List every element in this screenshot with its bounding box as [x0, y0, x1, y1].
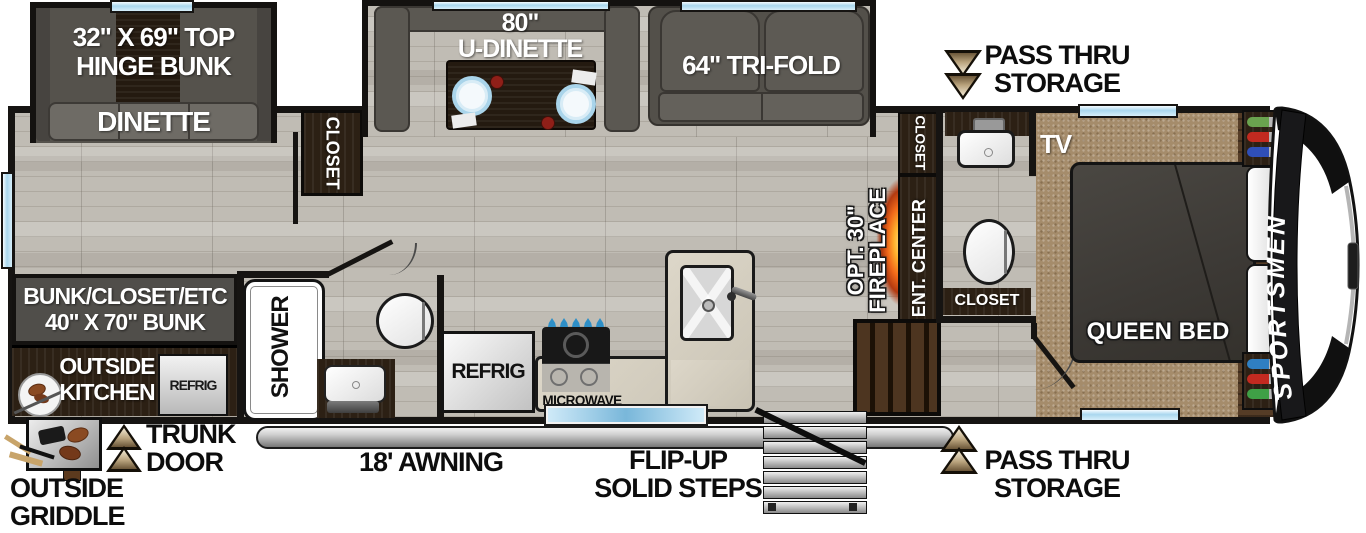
bunk-slide-line2: HINGE BUNK [36, 53, 271, 80]
bath-wall [237, 271, 329, 278]
island-sink [680, 265, 734, 341]
outside-kitchen-line2: KITCHEN [48, 381, 166, 404]
dinette-slideout: 32" X 69" TOP HINGE BUNK DINETTE [30, 2, 277, 143]
u-dinette-size: 80" [440, 11, 600, 37]
trunk-door-label: TRUNK DOOR [146, 421, 236, 476]
cup [490, 75, 504, 89]
outside-griddle-label: OUTSIDE GRIDDLE [10, 475, 126, 530]
griddle-line2: GRIDDLE [10, 503, 126, 531]
bath-closet: CLOSET [943, 288, 1031, 315]
place-setting [452, 76, 492, 116]
island-faucet-base [727, 292, 736, 301]
toilet [963, 219, 1015, 285]
refrig-label: REFRIG [451, 361, 524, 382]
awning-label: 18' AWNING [352, 449, 510, 477]
stove [542, 327, 610, 391]
trunk-line2: DOOR [146, 449, 236, 477]
dinette-slide-window [110, 0, 194, 13]
bunk-closet-cabinet: BUNK/CLOSET/ETC 40" X 70" BUNK [12, 274, 238, 345]
tri-fold-label: 64" TRI-FOLD [655, 52, 867, 79]
bedroom-window-top [1078, 104, 1178, 118]
outside-kitchen-line1: OUTSIDE [48, 355, 166, 378]
fireplace-line2: FIREPLACE [867, 188, 889, 313]
pass-thru-storage-bottom: PASS THRU STORAGE [978, 447, 1136, 502]
pass-thru-bottom-line2: STORAGE [978, 475, 1136, 503]
griddle-line1: OUTSIDE [10, 475, 126, 503]
tv-label: TV [1040, 131, 1084, 158]
bath-closet-label: CLOSET [955, 293, 1020, 309]
griddle-icon [26, 417, 102, 471]
toilet [376, 293, 434, 349]
front-cap: SPORTSMEN [1230, 98, 1366, 432]
trunk-line1: TRUNK [146, 421, 236, 449]
pass-thru-top-line2: STORAGE [980, 70, 1134, 98]
rear-window [1, 172, 14, 269]
bedroom-window-bottom [1080, 408, 1180, 422]
bunk-label-line2: 40" X 70" BUNK [16, 311, 234, 334]
u-dinette-label: U-DINETTE [430, 37, 610, 63]
queen-bed-label: QUEEN BED [1078, 320, 1238, 344]
bunk-label-line1: BUNK/CLOSET/ETC [16, 285, 234, 308]
hall-closet-label: CLOSET [323, 116, 341, 189]
entry-door [546, 406, 706, 424]
refrigerator: REFRIG [441, 331, 535, 413]
shower: SHOWER [243, 279, 325, 421]
steps-line1: FLIP-UP [590, 447, 766, 475]
bath-wall [936, 112, 943, 323]
dinette-seat-label: DINETTE [36, 108, 271, 137]
vanity-sink [957, 130, 1015, 168]
place-setting [556, 84, 596, 124]
shower-label: SHOWER [269, 296, 293, 398]
living-slide-window [432, 0, 610, 11]
u-dinette-bench [374, 6, 410, 132]
flip-up-steps-label: FLIP-UP SOLID STEPS [590, 447, 766, 502]
u-dinette-bench [604, 6, 640, 132]
pony-wall [293, 132, 298, 224]
outside-kitchen-cabinet: OUTSIDE KITCHEN REFRIG [12, 345, 238, 416]
bath-sink [324, 365, 386, 403]
living-slide-window [680, 0, 857, 12]
down-arrow-icon [944, 73, 982, 100]
exterior-steps [763, 411, 867, 515]
rv-floorplan: BUNK/CLOSET/ETC 40" X 70" BUNK OUTSIDE K… [0, 0, 1366, 533]
pass-thru-storage-top: PASS THRU STORAGE [980, 42, 1134, 97]
bath-faucet [327, 401, 379, 413]
bath-wall [936, 316, 1036, 323]
bunk-slide-line1: 32" X 69" TOP [36, 24, 271, 51]
outside-refrig-label: REFRIG [170, 378, 217, 392]
outside-kitchen-refrig: REFRIG [158, 354, 228, 416]
burner-flame-icons [548, 318, 608, 328]
cup [541, 116, 555, 130]
pass-thru-bottom-line1: PASS THRU [978, 447, 1136, 475]
pass-thru-top-line1: PASS THRU [980, 42, 1134, 70]
hall-closet: CLOSET [301, 110, 363, 196]
down-arrow-icon [944, 50, 982, 77]
steps-line2: SOLID STEPS [590, 475, 766, 503]
tv-wall [1029, 112, 1036, 176]
interior-steps [853, 319, 941, 416]
counter-joint [671, 360, 749, 406]
fireplace-line1: OPT. 30" [845, 188, 867, 313]
